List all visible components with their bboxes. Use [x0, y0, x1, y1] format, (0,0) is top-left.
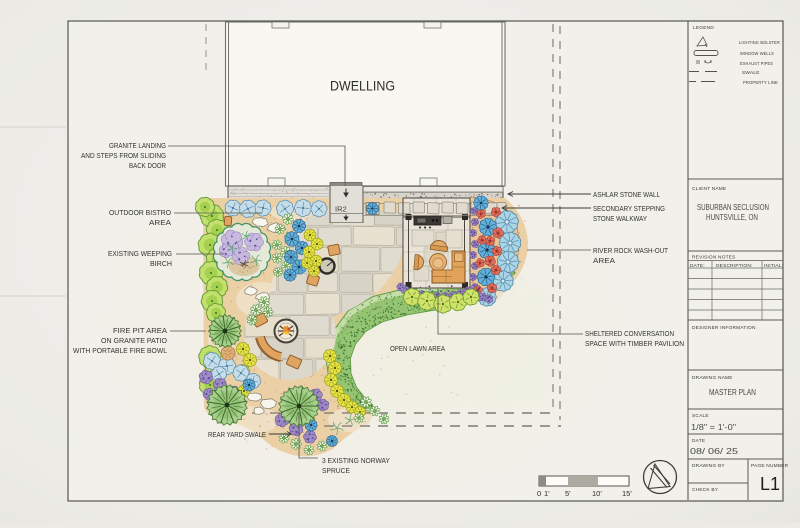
svg-text:RIVER ROCK WASH-OUT: RIVER ROCK WASH-OUT — [593, 246, 668, 255]
svg-text:CHECK BY: CHECK BY — [692, 487, 719, 493]
svg-text:3 EXISTING NORWAY: 3 EXISTING NORWAY — [322, 456, 390, 465]
svg-text:DWELLING: DWELLING — [330, 79, 395, 94]
svg-text:STONE WALKWAY: STONE WALKWAY — [593, 214, 647, 223]
svg-text:SCALE: SCALE — [692, 413, 709, 419]
svg-text:REVISION NOTES: REVISION NOTES — [692, 255, 736, 261]
svg-text:10': 10' — [592, 489, 602, 498]
svg-text:SPACE WITH TIMBER PAVILION: SPACE WITH TIMBER PAVILION — [585, 339, 684, 348]
svg-text:CLIENT NAME: CLIENT NAME — [692, 186, 726, 192]
svg-text:PAGE NUMBER: PAGE NUMBER — [751, 463, 789, 469]
svg-text:SUBURBAN SECLUSION: SUBURBAN SECLUSION — [697, 203, 769, 212]
svg-text:DRAWING BY: DRAWING BY — [692, 463, 725, 469]
svg-text:BACK DOOR: BACK DOOR — [129, 161, 166, 170]
svg-text:MASTER PLAN: MASTER PLAN — [709, 388, 756, 397]
svg-text:DATE:: DATE: — [690, 263, 705, 269]
svg-text:AND STEPS FROM SLIDING: AND STEPS FROM SLIDING — [81, 151, 166, 160]
svg-text:15': 15' — [622, 489, 632, 498]
svg-text:ASHLAR STONE WALL: ASHLAR STONE WALL — [593, 190, 660, 199]
svg-text:DESIGNER INFORMATION: DESIGNER INFORMATION — [692, 325, 756, 331]
svg-text:INITIAL:: INITIAL: — [764, 263, 783, 269]
svg-text:BIRCH: BIRCH — [150, 259, 172, 268]
svg-text:AREA: AREA — [593, 256, 615, 265]
svg-text:DATE: DATE — [692, 438, 705, 444]
svg-text:0: 0 — [537, 489, 541, 498]
svg-text:LIGHTING BOLSTER: LIGHTING BOLSTER — [739, 40, 780, 46]
svg-text:WINDOW WELLS: WINDOW WELLS — [740, 51, 774, 57]
svg-text:5': 5' — [565, 489, 571, 498]
svg-text:1/8" = 1'-0": 1/8" = 1'-0" — [691, 423, 736, 432]
svg-text:REAR YARD SWALE: REAR YARD SWALE — [208, 430, 266, 439]
svg-text:ON GRANITE PATIO: ON GRANITE PATIO — [101, 336, 167, 345]
svg-text:WITH PORTABLE FIRE BOWL: WITH PORTABLE FIRE BOWL — [73, 346, 167, 355]
svg-text:SWALE: SWALE — [742, 70, 760, 76]
svg-text:GRANITE LANDING: GRANITE LANDING — [109, 141, 166, 150]
svg-text:08/ 06/ 25: 08/ 06/ 25 — [690, 447, 739, 456]
svg-text:SPRUCE: SPRUCE — [322, 466, 350, 475]
svg-text:FIRE PIT AREA: FIRE PIT AREA — [113, 326, 167, 335]
svg-text:EXISTING WEEPING: EXISTING WEEPING — [108, 249, 172, 258]
svg-text:AREA: AREA — [149, 218, 171, 227]
svg-text:HUNTSVILLE, ON: HUNTSVILLE, ON — [706, 213, 758, 222]
svg-text:PROPERTY LINE: PROPERTY LINE — [743, 80, 778, 86]
svg-text:LEGEND: LEGEND — [693, 25, 714, 31]
svg-text:L1: L1 — [760, 474, 780, 494]
svg-text:OUTDOOR BISTRO: OUTDOOR BISTRO — [109, 208, 171, 217]
svg-text:SECONDARY STEPPING: SECONDARY STEPPING — [593, 204, 665, 213]
svg-text:OPEN LAWN AREA: OPEN LAWN AREA — [390, 344, 445, 353]
svg-text:DRAWING NAME: DRAWING NAME — [692, 375, 733, 381]
svg-text:IR2: IR2 — [335, 205, 347, 214]
svg-text:DESCRIPTION:: DESCRIPTION: — [716, 263, 753, 269]
svg-text:1': 1' — [544, 489, 550, 498]
svg-text:EXHAUST PIPES: EXHAUST PIPES — [740, 61, 773, 67]
svg-text:SHELTERED CONVERSATION: SHELTERED CONVERSATION — [585, 329, 674, 338]
